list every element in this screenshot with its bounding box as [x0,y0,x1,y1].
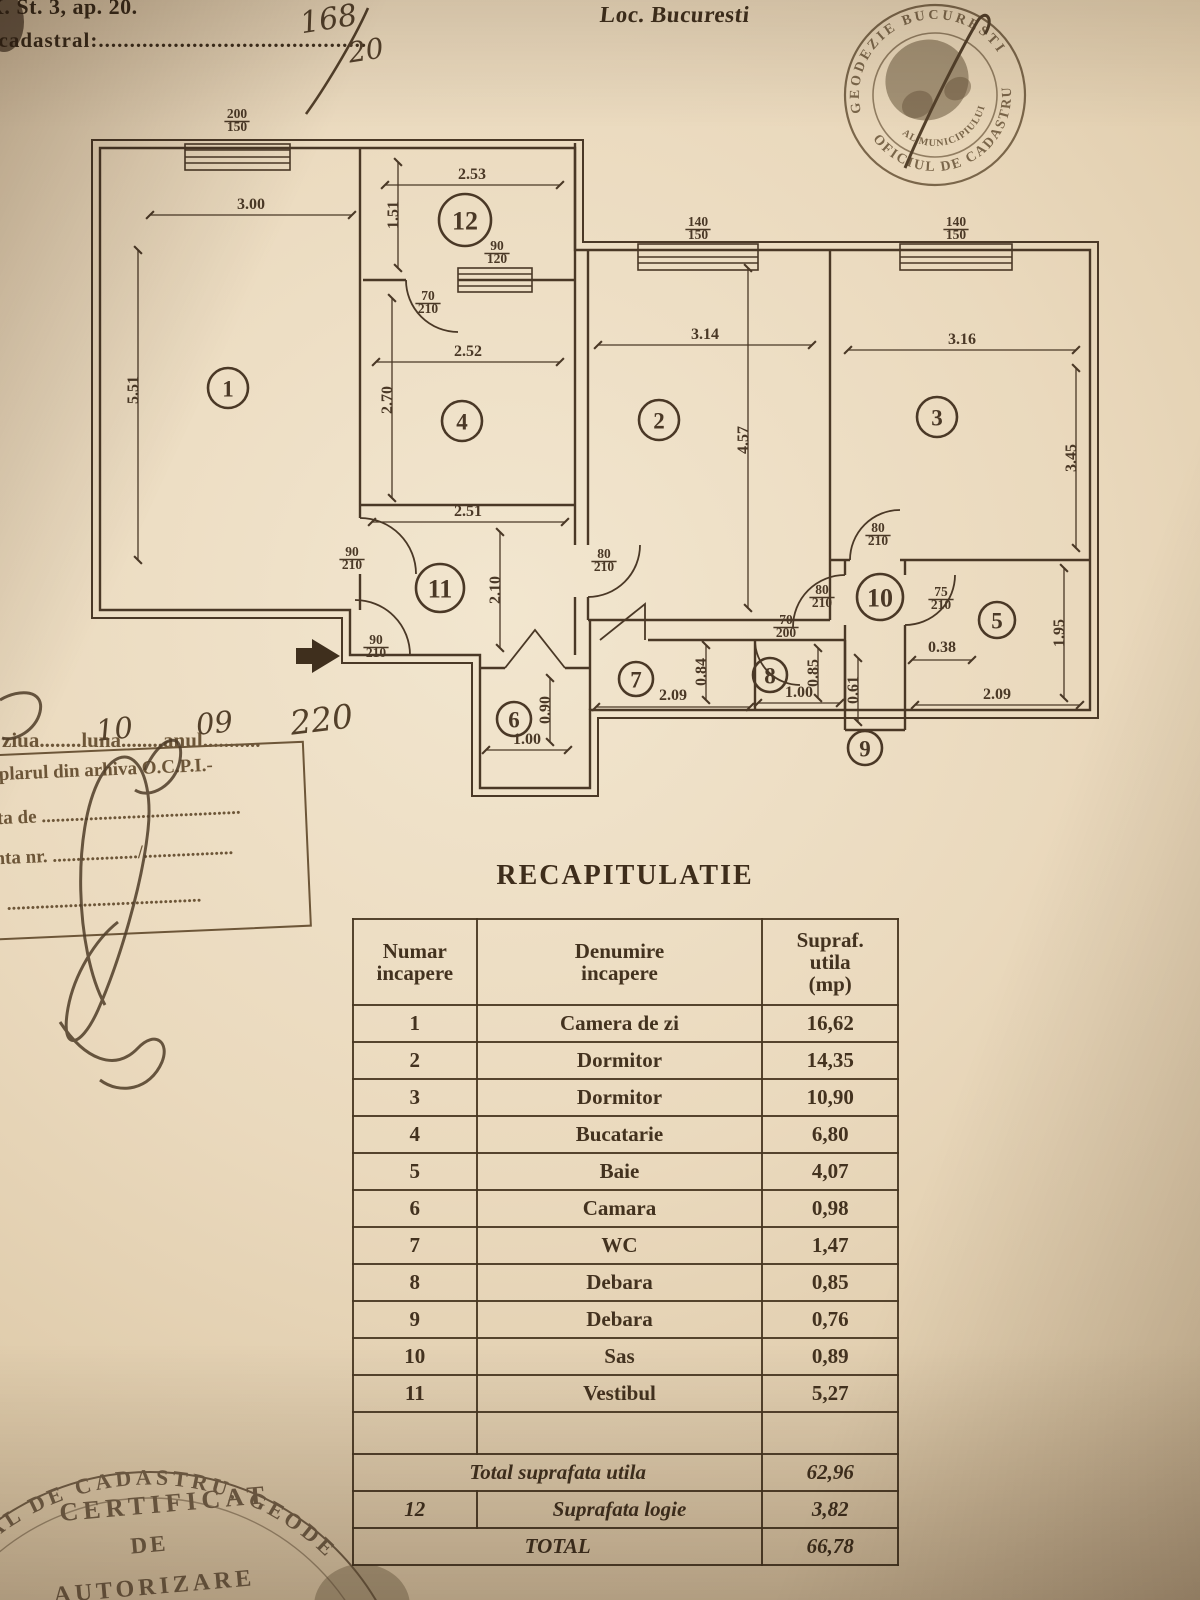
empty-row [353,1412,898,1454]
cell-room-number: 4 [353,1116,477,1153]
room-number: 9 [859,736,871,761]
round-stamp-top-right: GEODEZIE BUCURESTI OFICIUL DE CADASTRU A… [813,0,1056,217]
cell-room-number: 1 [353,1005,477,1042]
dimension-label: 0.38 [928,639,956,656]
dimension-label: 0.85 [805,659,822,687]
table-row: 1Camera de zi16,62 [353,1005,898,1042]
cell-room-area: 16,62 [762,1005,898,1042]
room-number: 10 [867,583,893,612]
dimension-label: 2.52 [454,343,482,360]
room-number: 11 [428,574,453,603]
table-row: 7WC1,47 [353,1227,898,1264]
door-arcs [355,280,955,685]
room-number: 6 [508,707,520,732]
door-size-label: 90210 [366,632,387,660]
recap-table-wrap: Numarincapere Denumireincapere Supraf.ut… [352,918,899,1566]
room-number: 5 [991,608,1003,633]
cell-room-name: Vestibul [477,1375,763,1412]
dimension-label: 2.09 [659,687,687,704]
handwritten-day: 10 [94,710,134,748]
scanned-cadastral-document: { "colors":{"ink":"#4a3826","stamp":"#6f… [0,0,1200,1600]
cell-room-name: Dormitor [477,1042,763,1079]
dimension-label: 3.14 [691,326,719,343]
loggia-number: 12 [353,1491,477,1528]
dimension-label: 2.09 [983,686,1011,703]
door-size-label: 80210 [594,546,615,574]
cell-room-area: 6,80 [762,1116,898,1153]
room-number: 1 [222,376,234,401]
cell-room-number: 10 [353,1338,477,1375]
total-utila-value: 62,96 [762,1454,898,1491]
room-number: 3 [931,405,943,430]
grand-total-row: TOTAL 66,78 [353,1528,898,1565]
cell-room-name: WC [477,1227,763,1264]
cell-room-number: 11 [353,1375,477,1412]
dimension-label: 3.16 [948,331,976,348]
dimension-label: 2.10 [487,576,504,604]
table-row: 5Baie4,07 [353,1153,898,1190]
door-size-label: 80210 [868,520,889,548]
loggia-value: 3,82 [762,1491,898,1528]
room-number: 8 [764,663,776,688]
dimension-label: 4.57 [735,426,752,454]
cell-room-area: 0,76 [762,1301,898,1338]
col-header-name: Denumireincapere [477,919,763,1005]
room-number: 2 [653,408,665,433]
handwritten-year: 220 [288,696,355,742]
dimension-label: 1.00 [513,731,541,748]
table-row: 2Dormitor14,35 [353,1042,898,1079]
cell-room-name: Bucatarie [477,1116,763,1153]
table-row: 10Sas0,89 [353,1338,898,1375]
table-row: 9Debara0,76 [353,1301,898,1338]
door-size-label: 140150 [946,214,967,242]
cell-room-area: 10,90 [762,1079,898,1116]
handwritten-number-denominator: 20 [346,31,386,69]
table-row: 4Bucatarie6,80 [353,1116,898,1153]
dimension-label: 5.51 [125,376,142,404]
dimension-label: 1.95 [1051,619,1068,647]
dimension-label: 2.51 [454,503,482,520]
loggia-label: Suprafata logie [477,1491,763,1528]
cell-room-name: Baie [477,1153,763,1190]
dimension-label: 2.53 [458,166,486,183]
svg-text:AUTORIZARE: AUTORIZARE [53,1565,257,1600]
signature [0,693,181,1089]
cell-room-name: Debara [477,1301,763,1338]
table-row: 6Camara0,98 [353,1190,898,1227]
cell-room-area: 0,89 [762,1338,898,1375]
dimension-label: 0.84 [693,658,710,686]
grand-total-value: 66,78 [762,1528,898,1565]
window-symbols [185,144,1012,292]
cell-room-number: 6 [353,1190,477,1227]
cell-room-area: 0,85 [762,1264,898,1301]
header-row: Numarincapere Denumireincapere Supraf.ut… [353,919,898,1005]
cell-room-name: Debara [477,1264,763,1301]
table-row: 8Debara0,85 [353,1264,898,1301]
cell-room-number: 3 [353,1079,477,1116]
dimension-label: 0.61 [845,676,862,704]
recap-table: Numarincapere Denumireincapere Supraf.ut… [352,918,899,1566]
door-size-label: 140150 [688,214,709,242]
cell-room-number: 5 [353,1153,477,1190]
col-header-area: Supraf.utila(mp) [762,919,898,1005]
cell-room-number: 8 [353,1264,477,1301]
cell-room-area: 1,47 [762,1227,898,1264]
door-size-label: 90210 [342,544,363,572]
dimension-label: 3.00 [237,196,265,213]
room-number: 7 [630,667,642,692]
cell-room-area: 14,35 [762,1042,898,1079]
door-size-label: 75210 [931,584,952,612]
cell-room-area: 0,98 [762,1190,898,1227]
cell-room-number: 7 [353,1227,477,1264]
cell-room-number: 2 [353,1042,477,1079]
cell-room-area: 4,07 [762,1153,898,1190]
cell-room-area: 5,27 [762,1375,898,1412]
cell-room-name: Dormitor [477,1079,763,1116]
grand-total-label: TOTAL [353,1528,762,1565]
cell-room-name: Sas [477,1338,763,1375]
total-utila-label: Total suprafata utila [353,1454,762,1491]
col-header-number: Numarincapere [353,919,477,1005]
door-size-label: 70210 [418,288,439,316]
door-size-label: 200150 [227,106,248,134]
loggia-row: 12 Suprafata logie 3,82 [353,1491,898,1528]
dimension-label: 2.70 [379,386,396,414]
cell-room-name: Camera de zi [477,1005,763,1042]
dimension-label: 0.90 [537,696,554,724]
dimension-label: 3.45 [1063,444,1080,472]
cell-room-name: Camara [477,1190,763,1227]
room-number: 12 [452,206,478,235]
entry-arrow-icon [296,639,340,673]
dimension-label: 1.51 [385,201,402,229]
room-number: 4 [456,409,468,434]
table-row: 3Dormitor10,90 [353,1079,898,1116]
handwritten-month: 09 [194,704,234,742]
total-utila-row: Total suprafata utila 62,96 [353,1454,898,1491]
door-size-label: 90120 [487,238,508,266]
scan-smudge [0,0,24,52]
table-row: 11Vestibul5,27 [353,1375,898,1412]
svg-text:DE: DE [129,1530,169,1558]
cell-room-number: 9 [353,1301,477,1338]
